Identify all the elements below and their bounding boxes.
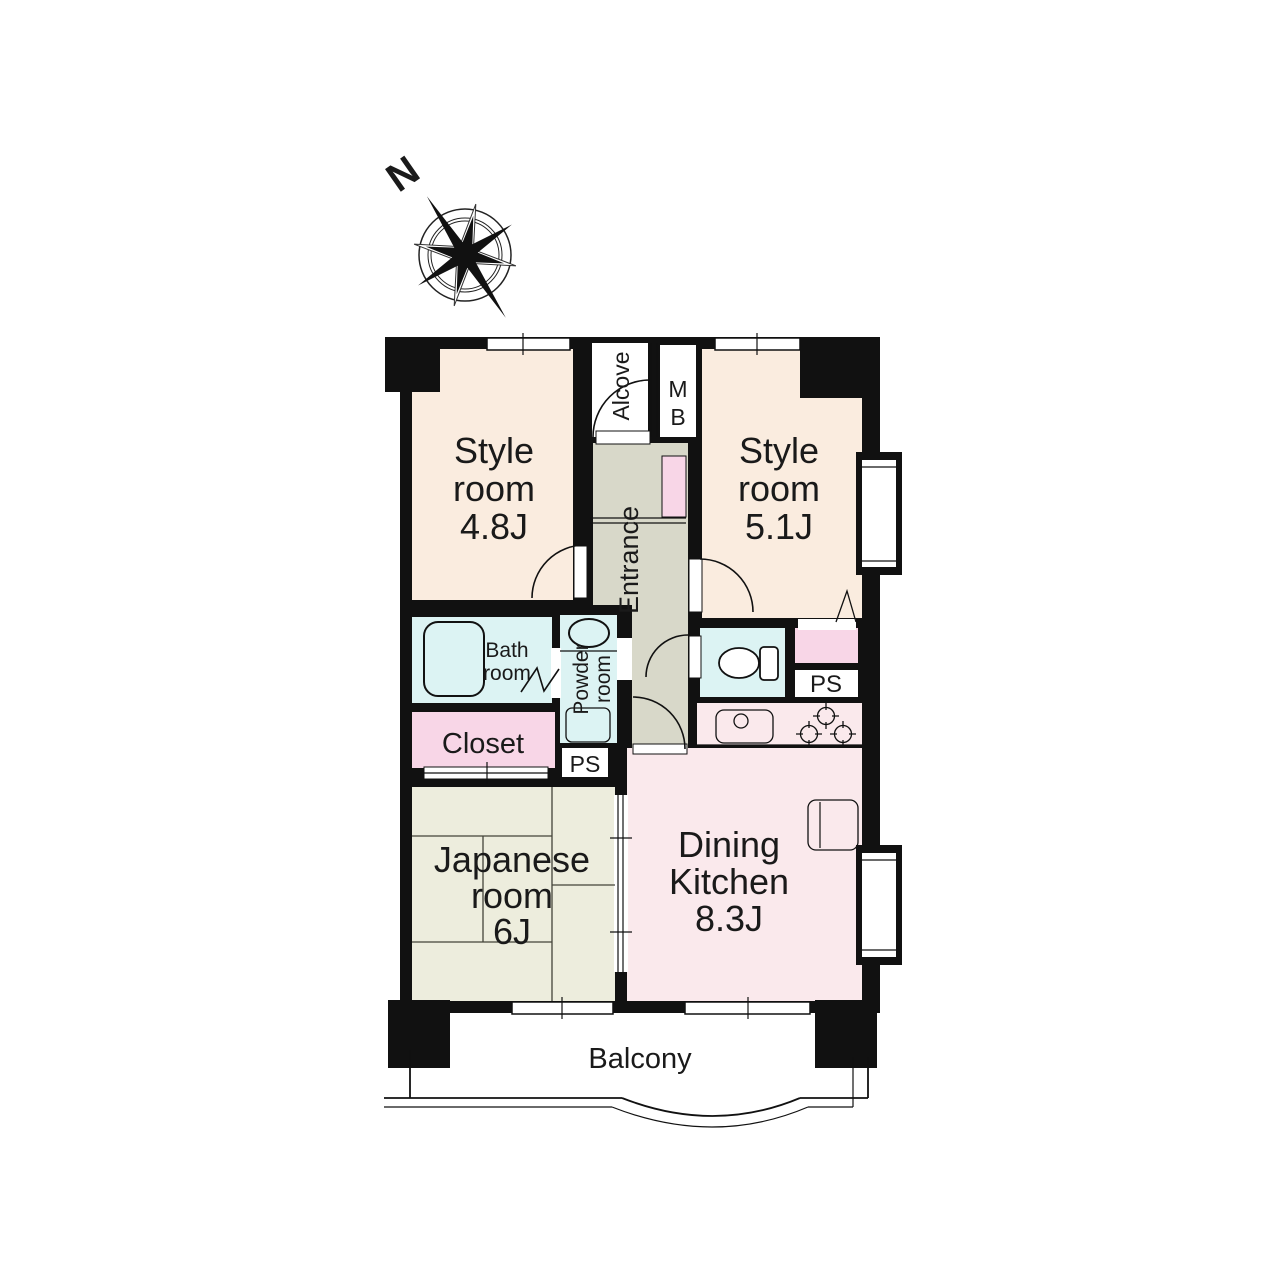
toilet-tank-icon [760, 647, 778, 680]
style2-label-line2: room [738, 468, 820, 509]
style2-label-size: 5.1J [745, 506, 813, 547]
japanese-label-line1: Japanese [434, 839, 590, 880]
mb-label-line2: B [670, 404, 685, 430]
pillar-top-left [385, 337, 440, 392]
bath-label-line1: Bath [485, 639, 528, 662]
style1-label-line2: room [453, 468, 535, 509]
kitchen-counter [697, 703, 862, 745]
floor-plan-page: N Style room 4.8J Style room 5.1J Japane… [0, 0, 1280, 1280]
entrance-label: Entrance [614, 506, 644, 614]
dk-label-size: 8.3J [695, 898, 763, 939]
floor-plan: N Style room 4.8J Style room 5.1J Japane… [0, 0, 1280, 1280]
pillar-bottom-left [388, 1000, 450, 1068]
alcove-label: Alcove [608, 351, 634, 420]
closet-label: Closet [442, 728, 524, 760]
style1-label-line1: Style [454, 430, 534, 471]
front-door-leaf [596, 431, 650, 444]
mb-label-line1: M [668, 376, 687, 402]
toilet-door-leaf [689, 636, 701, 678]
powder-door-opening [617, 638, 632, 680]
powder-label-line2: room [592, 655, 615, 703]
bay-window-style2 [862, 460, 896, 567]
shoe-cabinet [662, 456, 686, 517]
japanese-label-line2: room [471, 875, 553, 916]
style1-door-leaf [574, 546, 587, 598]
compass-north-label: N [379, 148, 428, 201]
balcony-label: Balcony [588, 1043, 692, 1075]
style2-label-line1: Style [739, 430, 819, 471]
pillar-top-right [800, 337, 880, 398]
dk-label-line1: Dining [678, 824, 780, 865]
japanese-dk-sliding-door [614, 795, 628, 972]
style1-label-size: 4.8J [460, 506, 528, 547]
style2-closet-opening [798, 619, 856, 630]
dk-label-line2: Kitchen [669, 861, 789, 902]
ps-right-label: PS [810, 671, 842, 698]
powder-label-line1: Powder [570, 643, 593, 714]
dk-door-leaf [633, 744, 687, 754]
toilet-icon [719, 648, 759, 678]
bath-label-line2: room [483, 662, 531, 685]
bay-window-dk [862, 853, 896, 957]
closet-style-2 [795, 628, 858, 663]
window-style1-top [487, 338, 570, 350]
ps-left-label: PS [570, 751, 601, 777]
japanese-label-size: 6J [493, 911, 531, 952]
style2-door-leaf [689, 559, 702, 612]
